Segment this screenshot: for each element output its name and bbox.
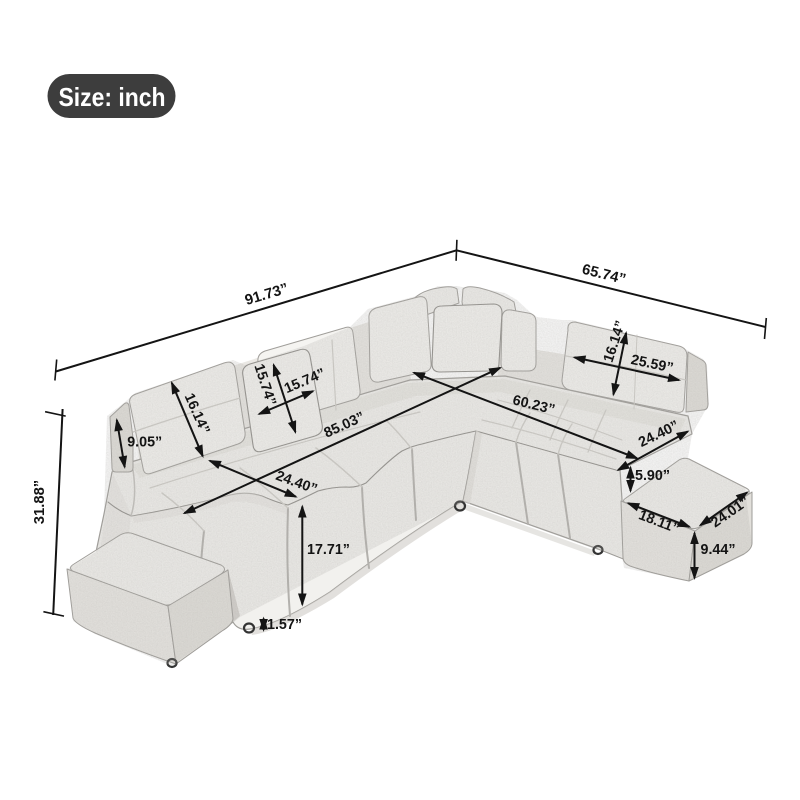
- svg-text:9.44”: 9.44”: [701, 542, 736, 558]
- svg-text:17.71”: 17.71”: [307, 542, 350, 558]
- svg-text:31.88”: 31.88”: [32, 480, 48, 524]
- svg-text:1.57”: 1.57”: [267, 617, 302, 633]
- svg-text:Size: inch: Size: inch: [59, 82, 166, 112]
- svg-text:5.90”: 5.90”: [635, 468, 670, 484]
- svg-text:9.05”: 9.05”: [127, 434, 162, 450]
